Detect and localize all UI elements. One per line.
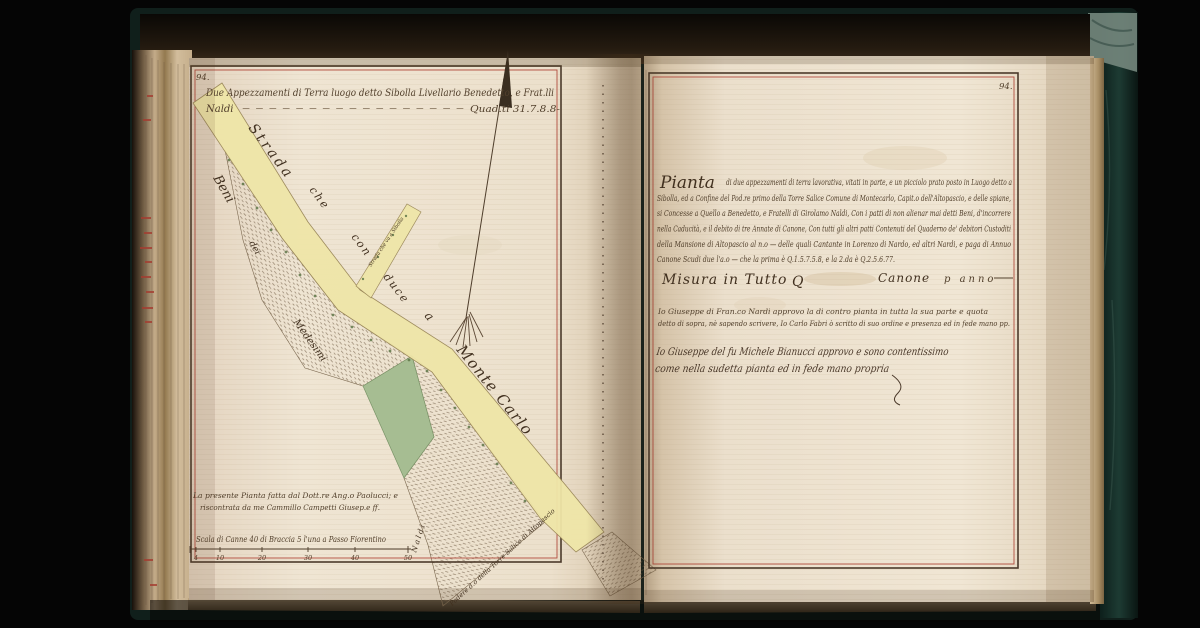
paragraph-line4: nella Caducità, e il debito di tre Annat…: [657, 225, 1011, 234]
scale-tick: 30: [304, 554, 312, 562]
paper-stain: [438, 235, 502, 255]
left-page-top-shade: [189, 58, 641, 67]
credit-line2: riscontrata da me Cammillo Campetti Gius…: [200, 503, 380, 512]
cover-right-edge: [1100, 12, 1138, 618]
paragraph-line5: della Mansione di Altopascio al n.o — de…: [657, 240, 1011, 249]
attestation1-line2: detto di sopra, nè sapendo scrivere, Io …: [658, 319, 1010, 328]
attestation2-line1: Io Giuseppe del fu Michele Bianucci appr…: [655, 346, 949, 358]
scale-tick: 40: [350, 554, 359, 562]
scale-tick: 10: [216, 554, 224, 562]
map-title-line1: Due Appezzamenti di Terra luogo detto Si…: [205, 88, 554, 99]
right-page-edge-shade: [1046, 56, 1094, 602]
paragraph-line1: di due appezzamenti di terra lavorativa,…: [726, 178, 1012, 187]
paragraph-line6: Canone Scudi due l'a.o — che la prima è …: [657, 255, 895, 264]
right-page-laid-texture: [644, 56, 1094, 602]
header-dash-fill: – – – – – – – – – – – – – – – – –: [242, 104, 465, 114]
right-page-top-shade: [644, 56, 1094, 64]
left-page-bottom-shade: [189, 588, 641, 600]
canone-suffix: p anno: [944, 274, 996, 285]
right-page-bottom-shade: [644, 590, 1094, 602]
scale-tick: 50: [404, 554, 412, 562]
misura-quantity-q: Q: [792, 274, 804, 290]
right-page-number: 94.: [999, 82, 1013, 92]
gutter-shadow: [586, 54, 662, 604]
attestation2-line2: come nella sudetta pianta ed in fede man…: [654, 363, 890, 375]
paragraph-line2: Sibolla, ed a Confine del Pod.re primo d…: [657, 194, 1011, 203]
attestation1-line1: Io Giuseppe di Fran.co Nardi approvo la …: [657, 307, 988, 316]
scale-tick: 20: [257, 554, 266, 562]
scale-caption: Scala di Canne 40 di Braccia 5 l'una a P…: [196, 535, 386, 545]
left-page-edge-shade: [189, 58, 215, 600]
header-quantity: Quad.ti 31.7.8.8-: [470, 104, 560, 115]
paragraph-lead-word: Pianta: [659, 173, 715, 193]
paragraph-line3: si Concesse a Quello a Benedetto, e Frat…: [657, 209, 1011, 218]
paper-stain: [863, 146, 947, 170]
credit-line1: La presente Pianta fatta dal Dott.re Ang…: [192, 491, 399, 500]
manuscript-photo: 94. Due Appezzamenti di Terra luogo dett…: [0, 0, 1200, 628]
book-scan: 94. Due Appezzamenti di Terra luogo dett…: [0, 0, 1200, 628]
fore-edge-stack: [132, 50, 192, 610]
misura-label: Misura in Tutto: [661, 272, 787, 288]
erased-smudge: [804, 272, 876, 286]
canone-label: Canone: [878, 271, 930, 285]
